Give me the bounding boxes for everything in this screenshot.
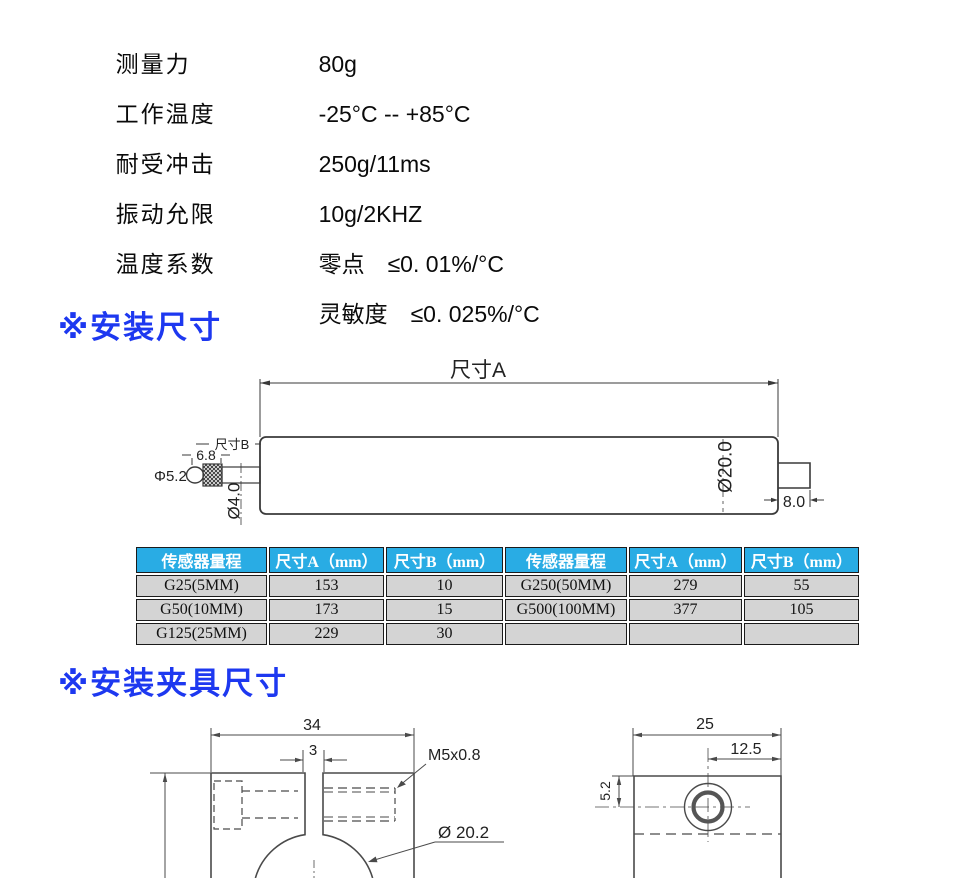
dimension-labels: 25 12.5 5.2 bbox=[597, 716, 762, 801]
dimension-labels: 34 3 M5x0.8 Ø 20.2 bbox=[303, 717, 489, 842]
slot-width-label: 3 bbox=[309, 742, 317, 759]
tip-diameter-label: Φ5.2 bbox=[154, 468, 187, 485]
spec-row: 灵敏度 ≤0. 025%/°C bbox=[90, 268, 540, 298]
clamp-width-label: 34 bbox=[303, 717, 321, 734]
dim-b-label: 尺寸B bbox=[215, 437, 250, 452]
table-header-cell: 尺寸B（mm） bbox=[386, 547, 503, 573]
table-cell bbox=[629, 623, 742, 645]
spec-row: 测量力80g bbox=[90, 18, 357, 48]
table-cell: G250(50MM) bbox=[505, 575, 627, 597]
table-row: G125(25MM) 229 30 bbox=[136, 623, 859, 645]
table-cell bbox=[744, 623, 859, 645]
spec-value: 灵敏度 ≤0. 025%/°C bbox=[319, 295, 540, 329]
table-cell: 229 bbox=[269, 623, 384, 645]
thread-spec-label: M5x0.8 bbox=[428, 747, 481, 764]
spec-row: 工作温度-25°C -- +85°C bbox=[90, 68, 471, 98]
half-width-label: 12.5 bbox=[730, 741, 761, 758]
bore-diameter-label: Ø 20.2 bbox=[438, 823, 489, 842]
table-header-cell: 传感器量程 bbox=[136, 547, 267, 573]
table-cell: 10 bbox=[386, 575, 503, 597]
table-cell: 153 bbox=[269, 575, 384, 597]
table-header-cell: 尺寸A（mm） bbox=[269, 547, 384, 573]
datasheet-page: 测量力80g 工作温度-25°C -- +85°C 耐受冲击250g/11ms … bbox=[0, 0, 960, 878]
knurl-length-label: 6.8 bbox=[196, 447, 216, 463]
table-cell: 279 bbox=[629, 575, 742, 597]
table-cell: 377 bbox=[629, 599, 742, 621]
table-cell: G50(10MM) bbox=[136, 599, 267, 621]
table-cell: G125(25MM) bbox=[136, 623, 267, 645]
spec-row: 耐受冲击250g/11ms bbox=[90, 118, 431, 148]
table-cell: 173 bbox=[269, 599, 384, 621]
clamp-outline bbox=[211, 773, 414, 878]
table-header-cell: 尺寸A（mm） bbox=[629, 547, 742, 573]
block-width-label: 25 bbox=[696, 716, 714, 733]
table-header-cell: 尺寸B（mm） bbox=[744, 547, 859, 573]
table-cell: G25(5MM) bbox=[136, 575, 267, 597]
section-heading-clamp: ※安装夹具尺寸 bbox=[58, 658, 288, 703]
spec-row: 振动允限10g/2KHZ bbox=[90, 168, 422, 198]
clamp-front-drawing: 34 3 M5x0.8 Ø 20.2 bbox=[140, 700, 520, 878]
hole-offset-label: 5.2 bbox=[597, 781, 613, 801]
dim-a-label: 尺寸A bbox=[450, 359, 506, 382]
table-cell bbox=[505, 623, 627, 645]
size-table: 传感器量程 尺寸A（mm） 尺寸B（mm） 传感器量程 尺寸A（mm） 尺寸B（… bbox=[134, 545, 861, 647]
block-outline bbox=[634, 776, 781, 878]
body-diameter-label: Ø20.0 bbox=[716, 441, 737, 493]
spec-row: 温度系数零点 ≤0. 01%/°C bbox=[90, 218, 504, 248]
table-cell: 105 bbox=[744, 599, 859, 621]
clamp-side-drawing: 25 12.5 5.2 bbox=[560, 700, 850, 878]
table-header-row: 传感器量程 尺寸A（mm） 尺寸B（mm） 传感器量程 尺寸A（mm） 尺寸B（… bbox=[136, 547, 859, 573]
shaft-diameter-label: Ø4.0 bbox=[225, 483, 244, 520]
stub-length-label: 8.0 bbox=[783, 494, 805, 511]
sensor-dimension-drawing: 尺寸A 尺寸B 6.8 Φ5.2 Ø4.0 Ø20.0 8.0 bbox=[140, 355, 840, 535]
table-row: G25(5MM) 153 10 G250(50MM) 279 55 bbox=[136, 575, 859, 597]
table-cell: 15 bbox=[386, 599, 503, 621]
section-heading-mount: ※安装尺寸 bbox=[58, 302, 222, 347]
table-header-cell: 传感器量程 bbox=[505, 547, 627, 573]
table-cell: G500(100MM) bbox=[505, 599, 627, 621]
dimension-arrows bbox=[163, 733, 414, 863]
table-row: G50(10MM) 173 15 G500(100MM) 377 105 bbox=[136, 599, 859, 621]
table-cell: 30 bbox=[386, 623, 503, 645]
table-cell: 55 bbox=[744, 575, 859, 597]
